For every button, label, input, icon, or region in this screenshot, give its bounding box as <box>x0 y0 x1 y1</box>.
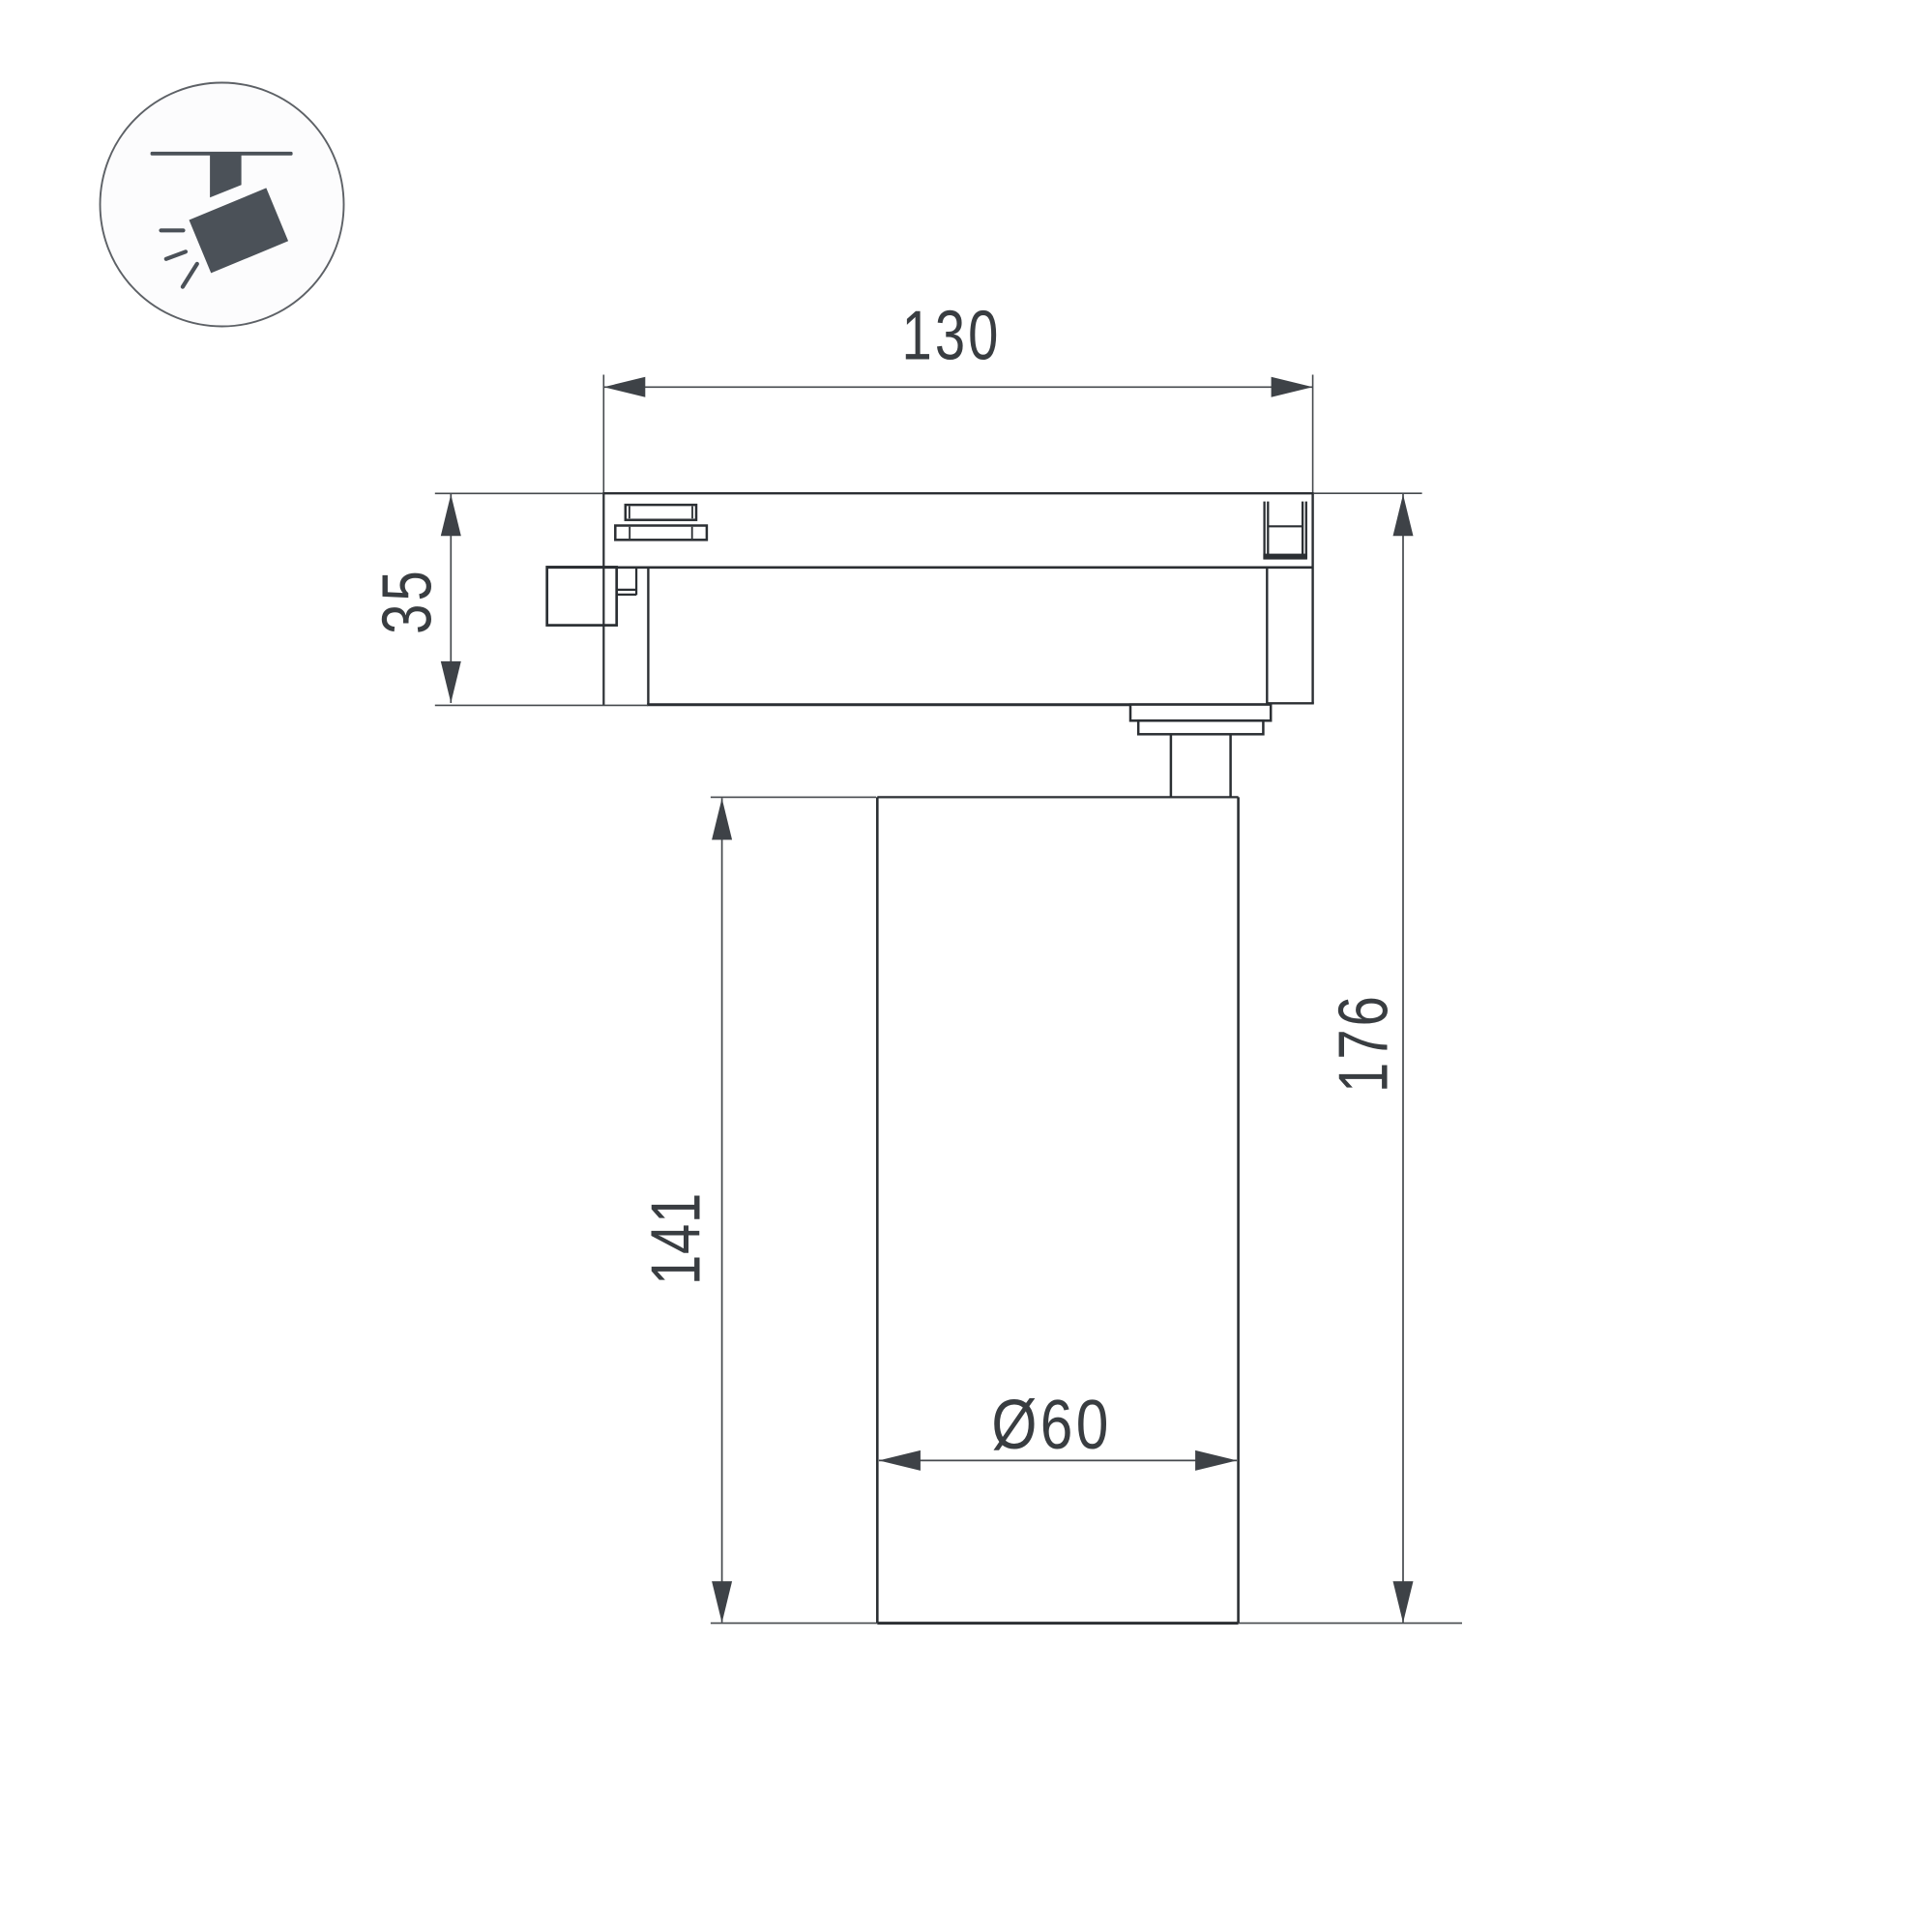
svg-text:35: 35 <box>368 568 446 634</box>
svg-text:141: 141 <box>637 1192 715 1285</box>
svg-text:130: 130 <box>901 297 1001 374</box>
svg-text:176: 176 <box>1325 993 1402 1093</box>
svg-text:Ø60: Ø60 <box>991 1387 1111 1464</box>
